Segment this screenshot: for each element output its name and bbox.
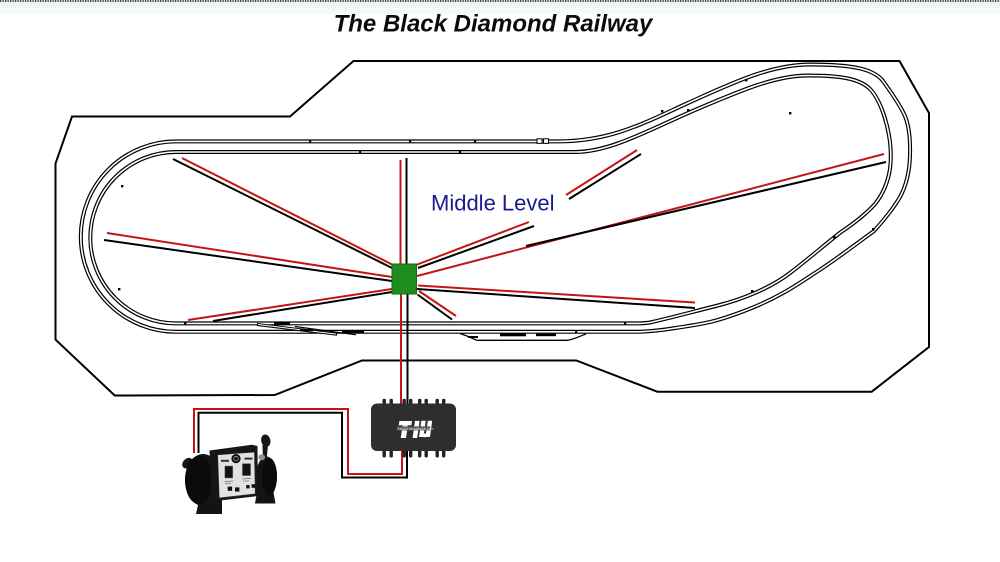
svg-text:TRACK INTERFACE UNIT: TRACK INTERFACE UNIT bbox=[398, 427, 434, 431]
svg-text:Middle Level: Middle Level bbox=[431, 191, 555, 216]
svg-text:The Black Diamond Railway: The Black Diamond Railway bbox=[334, 11, 654, 38]
